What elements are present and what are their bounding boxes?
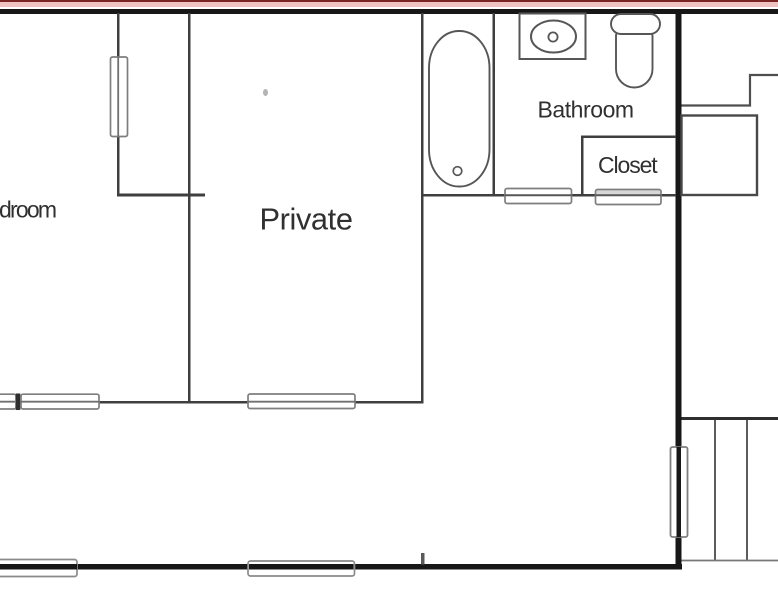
- svg-text:Bedroom: Bedroom: [0, 197, 56, 223]
- svg-text:Closet: Closet: [598, 152, 658, 178]
- svg-text:Bathroom: Bathroom: [538, 97, 634, 123]
- svg-text:Private: Private: [260, 202, 353, 237]
